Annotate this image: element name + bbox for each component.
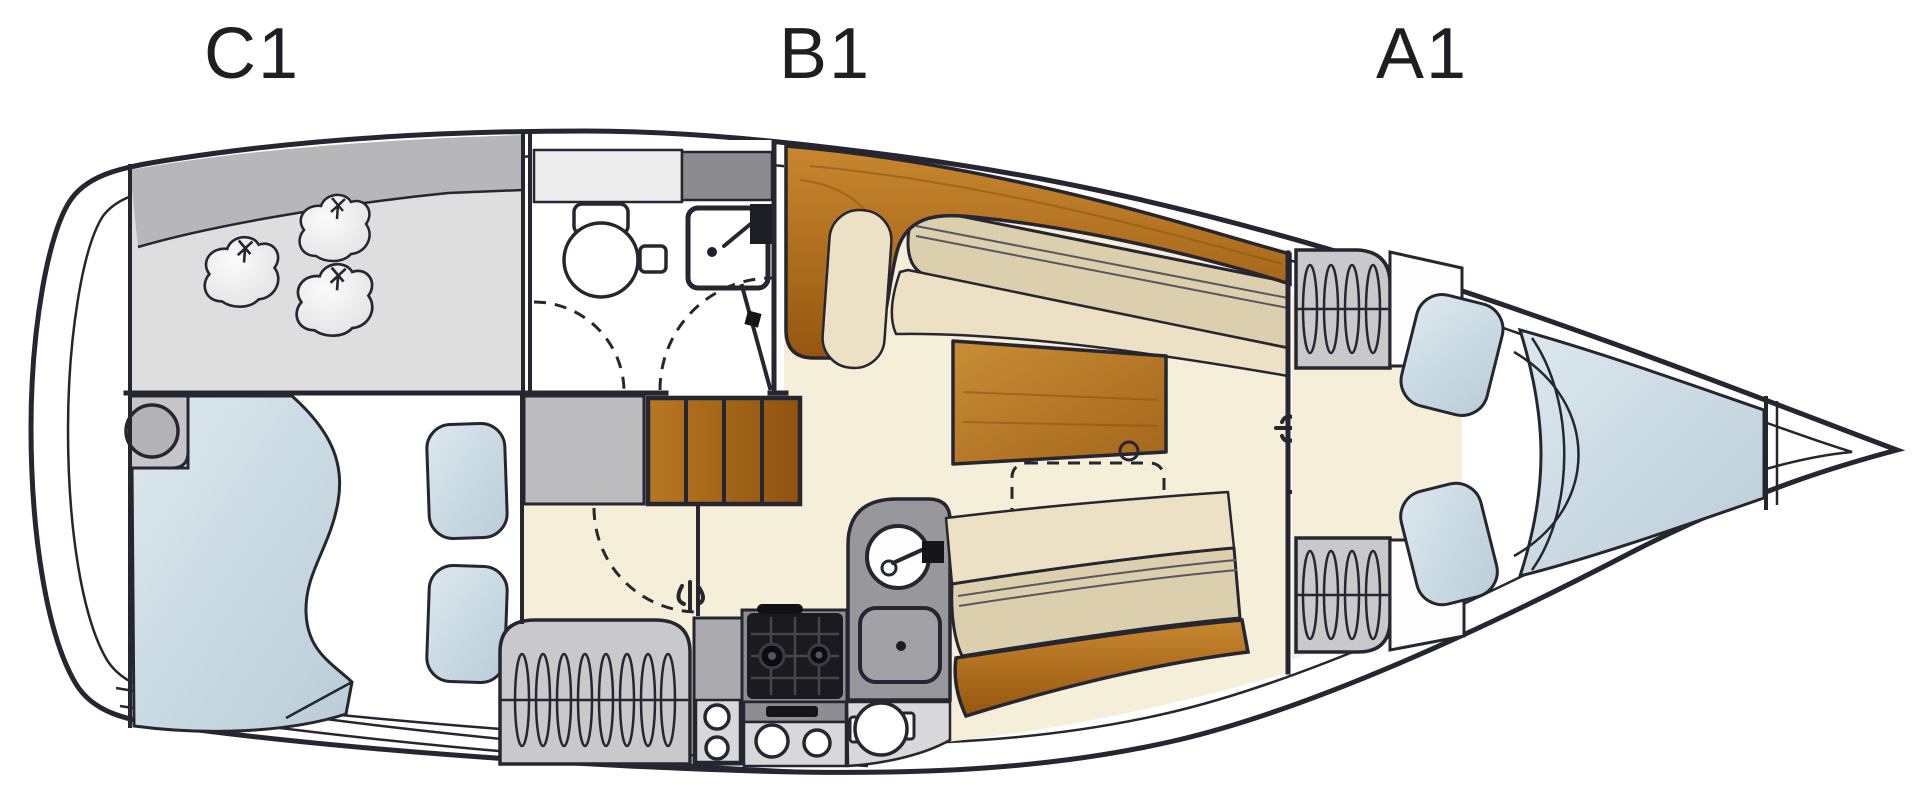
nav-seat-cushion <box>821 208 894 370</box>
aft-pillow <box>426 565 508 684</box>
label-section-c1: C1 <box>162 8 342 100</box>
head-counter <box>534 150 682 202</box>
galley-fitting-icon <box>706 737 728 759</box>
galley-sink-counter <box>847 499 950 766</box>
stove-knob-icon <box>756 725 788 757</box>
boat-floorplan: C1 B1 A1 <box>0 0 1920 788</box>
companionway-steps <box>648 398 800 504</box>
head-compartment <box>532 140 772 392</box>
forward-wardrobe-bottom <box>1296 538 1390 652</box>
washbasin-icon <box>688 204 772 288</box>
label-section-b1: B1 <box>735 8 915 100</box>
sail-locker <box>130 135 523 392</box>
landing-counter <box>524 396 644 504</box>
bedside-hatch-icon <box>126 405 178 457</box>
floorplan-drawing <box>0 0 1920 788</box>
v-berth <box>1514 330 1764 576</box>
aft-pillow <box>426 423 508 540</box>
head-cabinet <box>682 152 772 200</box>
square-sink-icon <box>860 608 940 682</box>
forward-wardrobe-top <box>1296 250 1390 368</box>
stove-knob-icon <box>804 730 830 756</box>
galley-fitting-icon <box>705 705 729 729</box>
label-section-a1: A1 <box>1332 8 1512 100</box>
stove-icon <box>742 604 847 766</box>
